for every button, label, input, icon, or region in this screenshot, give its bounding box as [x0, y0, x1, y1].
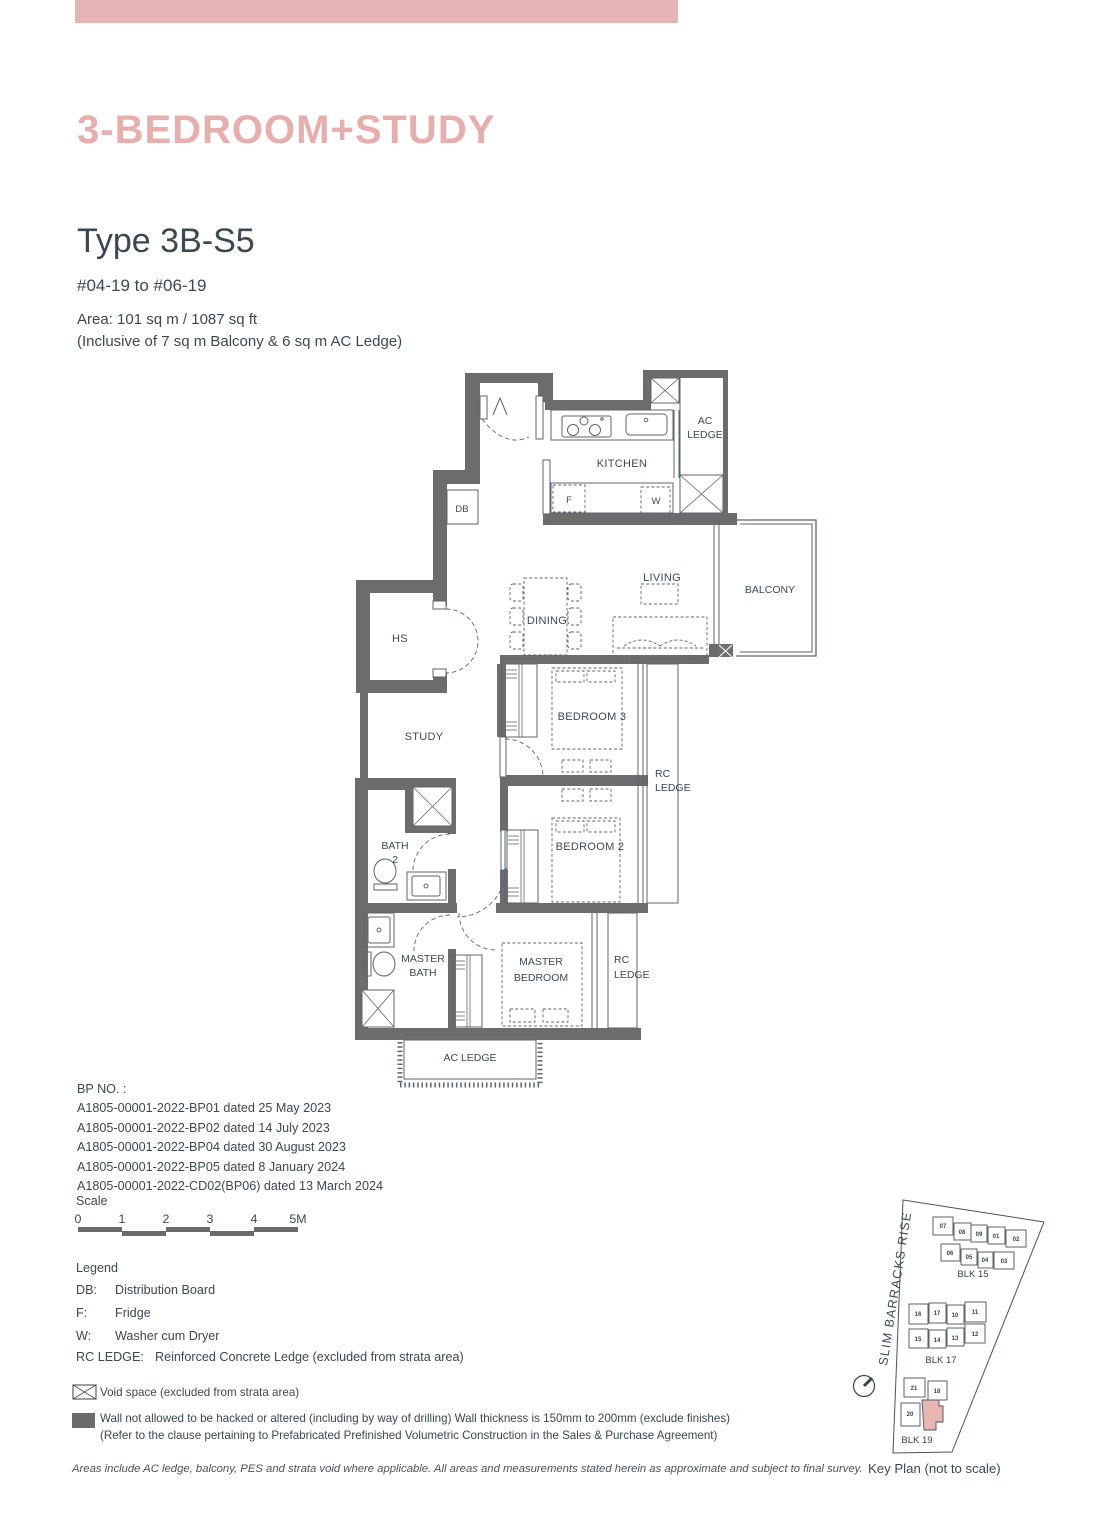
scale-bar-segment [166, 1227, 210, 1232]
unit-number: 01 [993, 1234, 1000, 1240]
room-label-bath2-a: BATH [381, 840, 408, 852]
bp-heading: BP NO. : [77, 1080, 383, 1099]
room-label-balcony: BALCONY [745, 584, 795, 596]
unit-number: 06 [947, 1251, 954, 1257]
north-indicator [854, 1376, 875, 1397]
unit-number: 21 [911, 1386, 918, 1392]
void-space-note: Void space (excluded from strata area) [100, 1386, 299, 1399]
legend-heading: Legend [76, 1261, 118, 1275]
unit-number: 03 [1001, 1259, 1008, 1265]
wall-note-line-1: Wall not allowed to be hacked or altered… [100, 1412, 730, 1425]
legend-key-f: F: [76, 1306, 87, 1320]
room-label-bath2-b: 2 [392, 854, 398, 866]
brochure-page: 3-BEDROOM+STUDY Type 3B-S5 #04-19 to #06… [0, 0, 1100, 1519]
scale-heading: Scale [76, 1194, 108, 1208]
room-label-ac-ledge-top-1: AC [698, 415, 713, 427]
unit-number: 04 [982, 1258, 989, 1264]
unit-number: 15 [915, 1337, 922, 1343]
block-label-19: BLK 19 [901, 1435, 932, 1446]
unit-number: 12 [972, 1332, 979, 1338]
room-label-master-bath-a: MASTER [401, 953, 445, 965]
void-space-icon [72, 1384, 98, 1401]
scale-tick-5: 5M [289, 1212, 306, 1226]
wall-swatch-icon [72, 1413, 95, 1428]
scale-tick-0: 0 [75, 1212, 82, 1226]
unit-number: 20 [907, 1412, 914, 1418]
room-label-hs: HS [392, 633, 408, 645]
unit-number: 10 [952, 1313, 959, 1319]
room-label-master-bath-b: BATH [409, 967, 436, 979]
scale-bar-segment [78, 1227, 122, 1232]
scale-tick-3: 3 [207, 1212, 214, 1226]
scale-tick-2: 2 [163, 1212, 170, 1226]
room-label-master-bedroom-b: BEDROOM [514, 972, 568, 984]
unit-number: 11 [972, 1310, 979, 1316]
room-label-rc-ledge-1a: RC [655, 768, 671, 780]
room-label-bedroom2: BEDROOM 2 [556, 841, 625, 853]
legend-key-w: W: [76, 1329, 91, 1343]
room-label-rc-ledge-2b: LEDGE [614, 969, 650, 981]
room-label-kitchen: KITCHEN [597, 458, 647, 470]
legend-value-rc-ledge: Reinforced Concrete Ledge (excluded from… [155, 1350, 464, 1364]
room-label-rc-ledge-2a: RC [614, 954, 630, 966]
legend-key-db: DB: [76, 1283, 97, 1297]
bp-line: A1805-00001-2022-BP05 dated 8 January 20… [77, 1158, 383, 1177]
room-label-bedroom3: BEDROOM 3 [558, 711, 627, 723]
room-label-dining: DINING [527, 615, 567, 627]
unit-number: 13 [952, 1336, 959, 1342]
scale-tick-4: 4 [251, 1212, 258, 1226]
fixture-label-fridge: F [566, 495, 572, 506]
legend-value-f: Fridge [115, 1306, 151, 1320]
bp-line: A1805-00001-2022-BP04 dated 30 August 20… [77, 1138, 383, 1157]
unit-type-heading: Type 3B-S5 [77, 222, 255, 261]
room-label-study: STUDY [405, 731, 444, 743]
block-label-15: BLK 15 [957, 1269, 988, 1280]
unit-range: #04-19 to #06-19 [77, 276, 207, 296]
legend-value-w: Washer cum Dryer [115, 1329, 220, 1343]
room-label-ac-ledge-bottom: AC LEDGE [443, 1052, 496, 1064]
key-plan-caption: Key Plan (not to scale) [868, 1461, 1001, 1476]
scale-bar-segment [122, 1231, 166, 1236]
scale-bar-segment [254, 1227, 298, 1232]
wall-note-line-2: (Refer to the clause pertaining to Prefa… [100, 1429, 717, 1442]
bp-number-block: BP NO. : A1805-00001-2022-BP01 dated 25 … [77, 1080, 383, 1196]
bp-line: A1805-00001-2022-BP01 dated 25 May 2023 [77, 1099, 383, 1118]
area-note: (Inclusive of 7 sq m Balcony & 6 sq m AC… [77, 333, 402, 350]
header-accent-bar [75, 0, 678, 23]
fixture-label-db: DB [455, 504, 468, 515]
footer-disclaimer: Areas include AC ledge, balcony, PES and… [72, 1463, 863, 1475]
unit-number: 14 [934, 1338, 941, 1344]
page-title: 3-BEDROOM+STUDY [77, 108, 495, 153]
bp-line: A1805-00001-2022-BP02 dated 14 July 2023 [77, 1119, 383, 1138]
block-label-17: BLK 17 [925, 1355, 956, 1366]
unit-number: 17 [934, 1311, 941, 1317]
unit-number: 07 [940, 1224, 947, 1230]
unit-number: 16 [915, 1312, 922, 1318]
unit-number: 09 [976, 1232, 983, 1238]
room-label-living: LIVING [643, 572, 681, 584]
unit-number: 18 [934, 1389, 941, 1395]
scale-bar-segment [210, 1231, 254, 1236]
key-plan: SLIM BARRACKS RISE 07 08 09 01 02 06 05 … [845, 1195, 1085, 1475]
room-label-rc-ledge-1b: LEDGE [655, 782, 691, 794]
legend-value-db: Distribution Board [115, 1283, 215, 1297]
room-label-ac-ledge-top-2: LEDGE [687, 429, 723, 441]
bp-line: A1805-00001-2022-CD02(BP06) dated 13 Mar… [77, 1177, 383, 1196]
floor-plan: KITCHEN AC LEDGE F W DB LIVING BALCONY D… [350, 363, 842, 1095]
unit-number: 02 [1013, 1237, 1020, 1243]
scale-tick-1: 1 [119, 1212, 126, 1226]
unit-number: 05 [966, 1255, 973, 1261]
unit-number: 08 [959, 1230, 966, 1236]
legend-key-rc-ledge: RC LEDGE: [76, 1350, 144, 1364]
fixture-label-washer: W [652, 496, 661, 507]
area-line: Area: 101 sq m / 1087 sq ft [77, 311, 257, 328]
room-label-master-bedroom-a: MASTER [519, 956, 563, 968]
